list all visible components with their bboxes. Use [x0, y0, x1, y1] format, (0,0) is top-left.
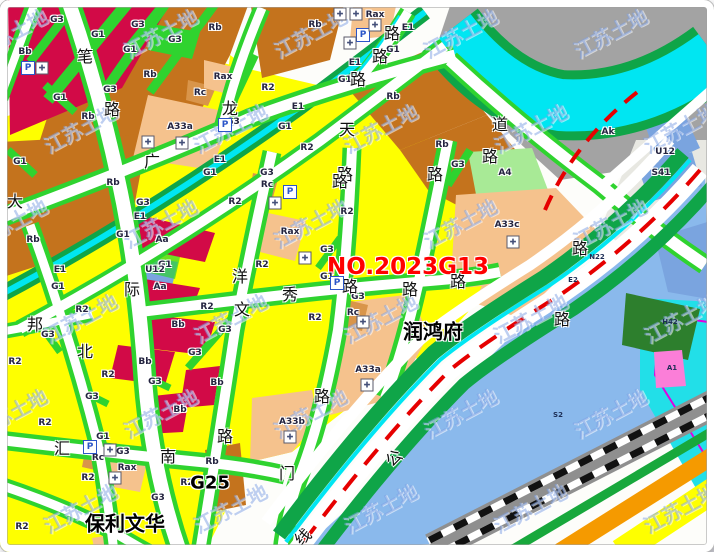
map-canvas: [0, 0, 714, 552]
map-screenshot: 江苏土地江苏土地江苏土地江苏土地江苏土地江苏土地江苏土地江苏土地江苏土地江苏土地…: [0, 0, 714, 552]
zoning-map[interactable]: 江苏土地江苏土地江苏土地江苏土地江苏土地江苏土地江苏土地江苏土地江苏土地江苏土地…: [0, 0, 714, 552]
